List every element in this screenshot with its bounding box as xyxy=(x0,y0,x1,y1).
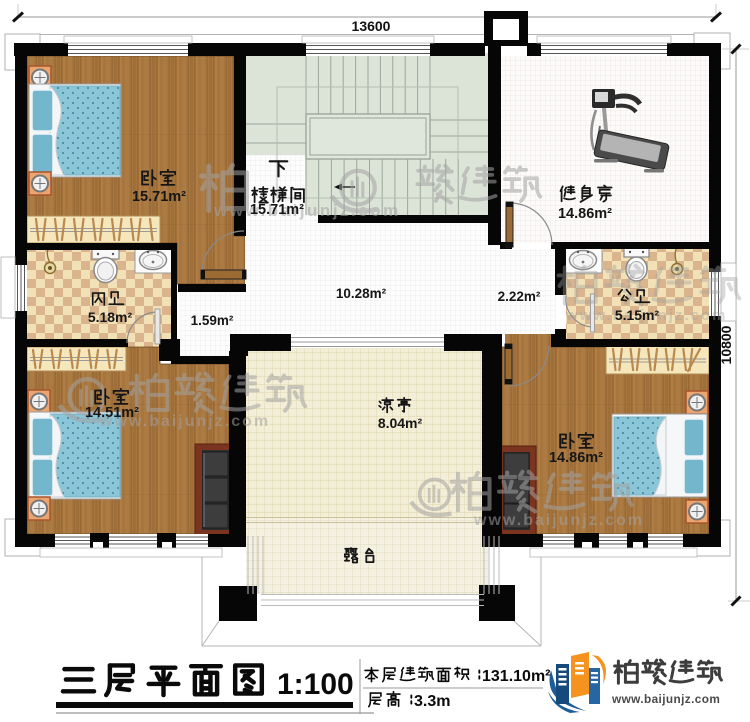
svg-text:1.59m²: 1.59m² xyxy=(191,313,234,328)
svg-text:15.71m²: 15.71m² xyxy=(132,189,186,205)
svg-text:14.86m²: 14.86m² xyxy=(558,206,612,222)
svg-text:8.04m²: 8.04m² xyxy=(378,415,423,431)
svg-text:10.28m²: 10.28m² xyxy=(336,286,387,301)
svg-text:14.51m²: 14.51m² xyxy=(85,405,139,421)
svg-text:15.71m²: 15.71m² xyxy=(250,202,304,218)
svg-text:2.22m²: 2.22m² xyxy=(498,289,541,304)
svg-text:www.baijunjz.com: www.baijunjz.com xyxy=(473,512,644,529)
svg-text:131.10m²: 131.10m² xyxy=(482,668,551,685)
svg-text:5.18m²: 5.18m² xyxy=(88,309,133,325)
svg-text:14.86m²: 14.86m² xyxy=(549,450,603,466)
svg-text:13600: 13600 xyxy=(352,18,391,34)
svg-text:1:100: 1:100 xyxy=(277,668,354,701)
svg-text:www.baijunjz.com: www.baijunjz.com xyxy=(611,692,720,706)
svg-text:3.3m: 3.3m xyxy=(414,693,450,710)
svg-text:www.baijunjz.com: www.baijunjz.com xyxy=(213,201,401,220)
svg-text:5.15m²: 5.15m² xyxy=(615,307,660,323)
